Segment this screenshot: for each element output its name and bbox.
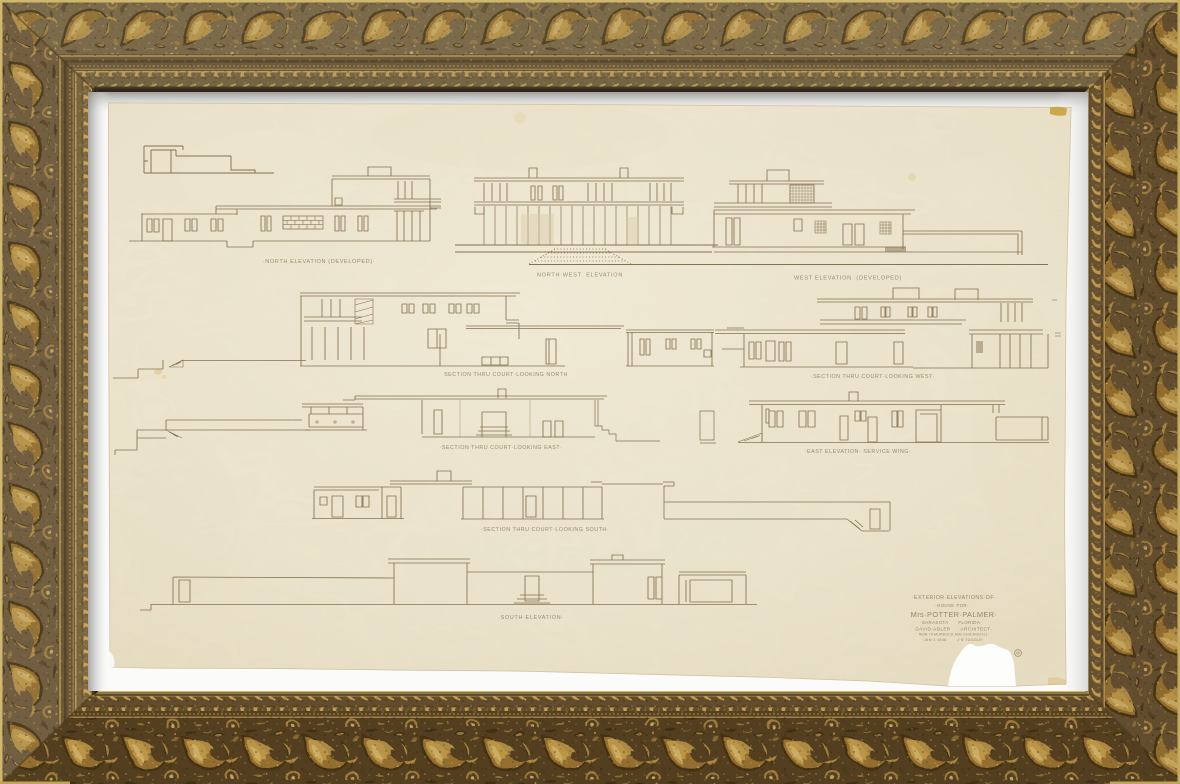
svg-text:SECTION THRU COURT·LOOKING NOR: SECTION THRU COURT·LOOKING NORTH	[444, 372, 568, 378]
svg-text:Mrs·POTTER·PALMER·: Mrs·POTTER·PALMER·	[911, 610, 998, 619]
svg-text:·DAVID·ADLER ARCHITECT·: ·DAVID·ADLER ARCHITECT·	[914, 627, 993, 632]
svg-text:·HOUSE·FOR·: ·HOUSE·FOR·	[935, 603, 969, 608]
svg-text:·EXTERIOR·ELEVATIONS·OF·: ·EXTERIOR·ELEVATIONS·OF·	[912, 595, 996, 601]
svg-text:·SARASOTA FLORIDA·: ·SARASOTA FLORIDA·	[920, 620, 982, 625]
svg-text:NORTH·WEST ELEVATION: NORTH·WEST ELEVATION	[537, 273, 623, 279]
svg-text:·NORTH ELEVATION (DEVELOPED)·: ·NORTH ELEVATION (DEVELOPED)·	[263, 259, 376, 265]
svg-text:NEW 70 MURDOCK AVE·CHICAGO·ILL: NEW 70 MURDOCK AVE·CHICAGO·ILL·	[919, 633, 990, 637]
svg-text:·SECTION THRU COURT·LOOKING WE: ·SECTION THRU COURT·LOOKING WEST·	[811, 374, 935, 380]
svg-text:·JAN·1·1946 J·N·TUGGLE·: ·JAN·1·1946 J·N·TUGGLE·	[922, 638, 983, 642]
svg-text:·SECTION THRU COURT·LOOKING EA: ·SECTION THRU COURT·LOOKING EAST·	[440, 445, 563, 451]
svg-text:WEST ELEVATION (DEVELOPED): WEST ELEVATION (DEVELOPED)	[794, 276, 902, 282]
svg-text:·EAST ELEVATION· SERVICE WING·: ·EAST ELEVATION· SERVICE WING·	[805, 449, 912, 455]
svg-text:·SOUTH·ELEVATION·: ·SOUTH·ELEVATION·	[498, 615, 564, 621]
svg-text:·SECTION THRU COURT·LOOKING SO: ·SECTION THRU COURT·LOOKING SOUTH·	[481, 527, 609, 533]
